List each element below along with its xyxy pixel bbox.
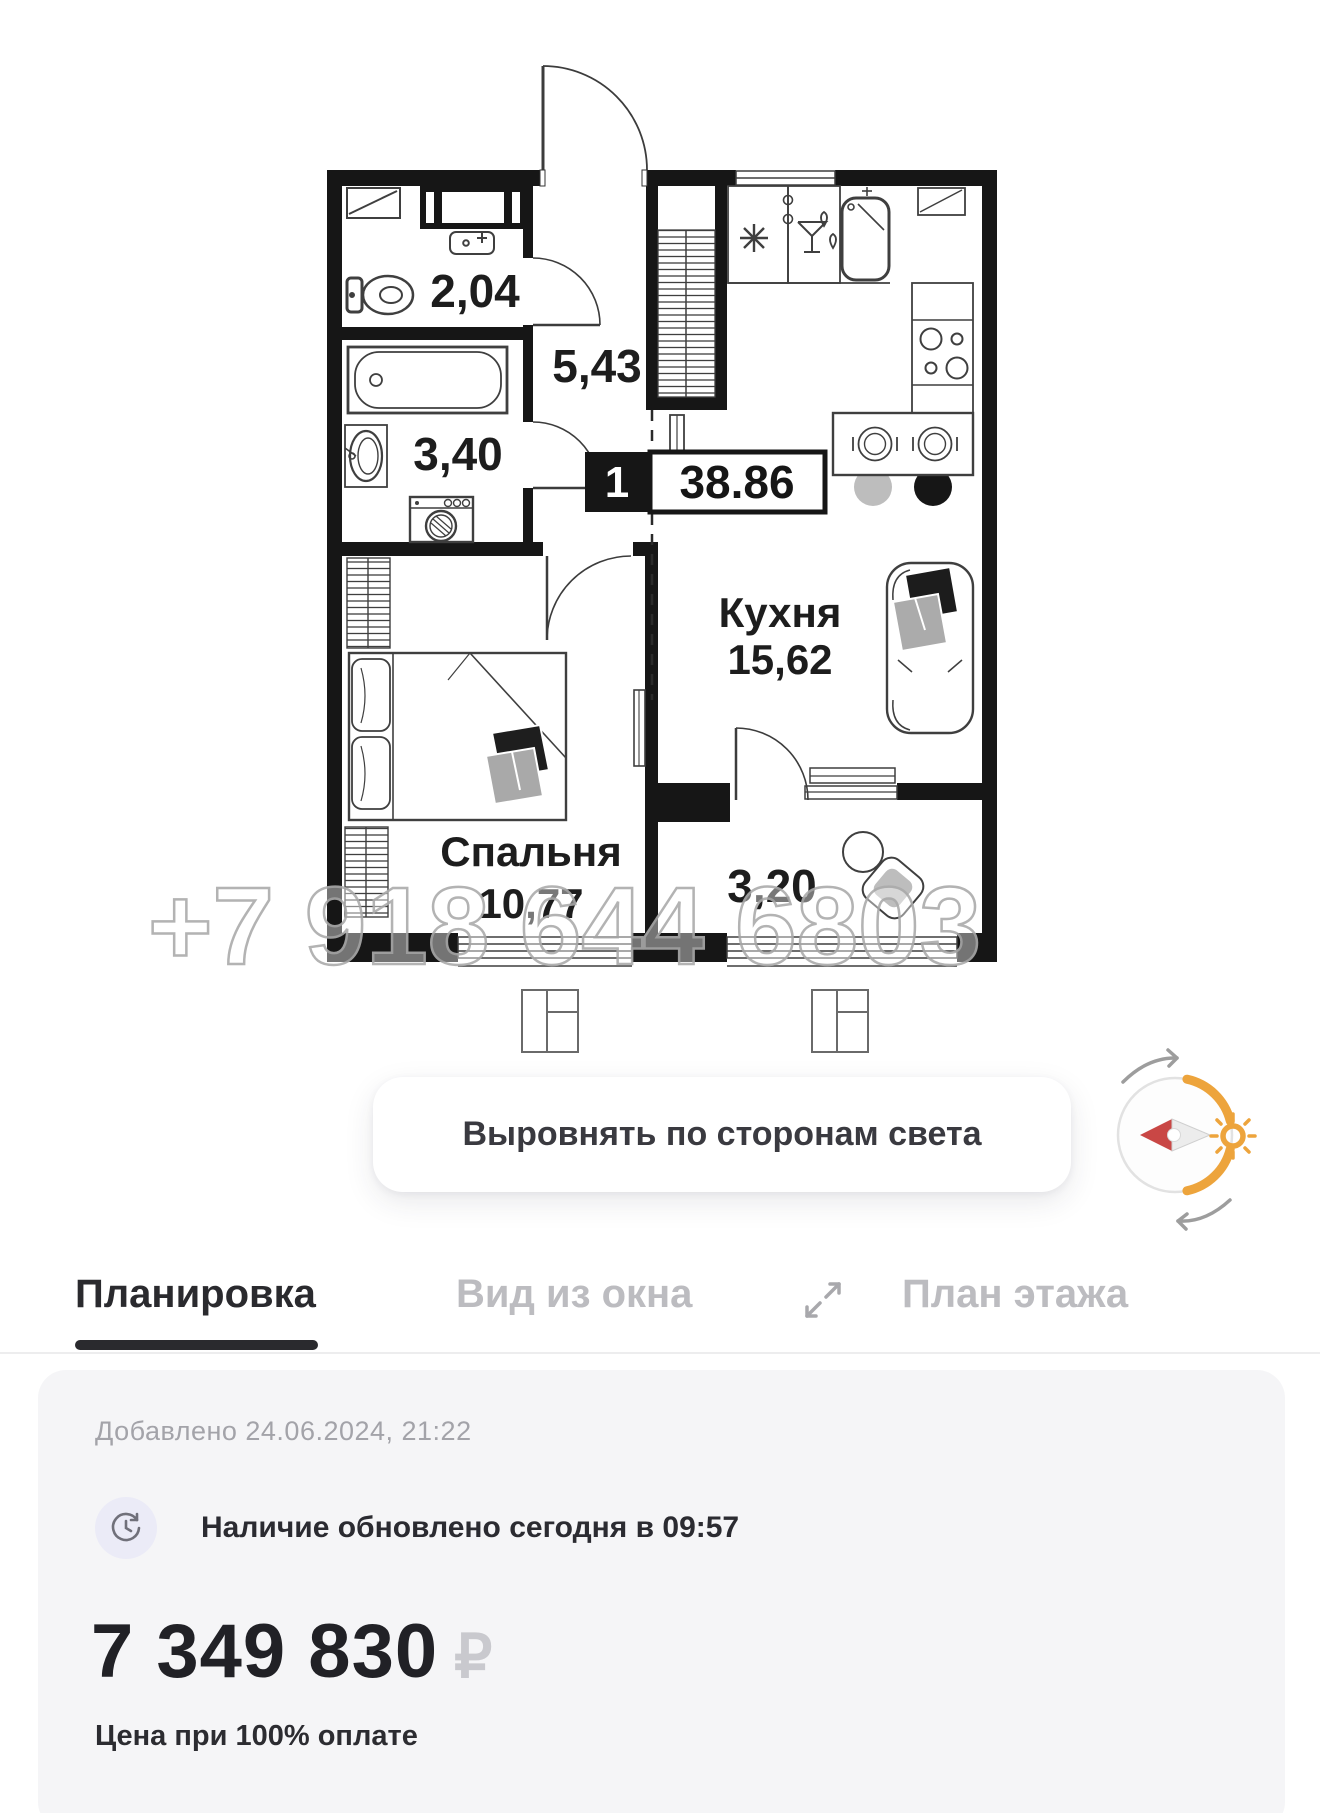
align-compass-button[interactable]: Выровнять по сторонам света (373, 1077, 1071, 1192)
badge-room-count: 1 (605, 458, 629, 507)
tab-window-view[interactable]: Вид из окна (456, 1272, 692, 1317)
room-label-hall-area: 5,43 (552, 340, 642, 392)
watermark-phone: +7 918 644 6803 (148, 865, 981, 988)
room-label-bathroom-area: 3,40 (413, 428, 503, 480)
badge-total-area: 38.86 (679, 456, 794, 508)
availability-badge (95, 1497, 157, 1559)
price-row: 7 349 830 ₽ (91, 1608, 492, 1695)
shaft (658, 230, 715, 397)
room-labels: 2,04 5,43 3,40 Кухня 15,62 Спальня 10,77… (413, 265, 841, 927)
price-value: 7 349 830 (91, 1608, 438, 1695)
room-label-kitchen-name: Кухня (719, 589, 842, 636)
currency-symbol: ₽ (454, 1622, 492, 1692)
compass-widget[interactable] (1100, 1045, 1280, 1245)
listing-screen: 1 38.86 2,04 5,43 3,40 Кухня 15,62 Спаль… (0, 0, 1320, 1813)
tabs-divider (0, 1352, 1320, 1354)
tab-floor-plan[interactable]: План этажа (902, 1272, 1128, 1317)
details-card: Добавлено 24.06.2024, 21:22 Наличие обно… (38, 1370, 1285, 1813)
expand-icon[interactable] (795, 1272, 851, 1328)
unit-badge: 1 38.86 (585, 452, 825, 512)
added-date: Добавлено 24.06.2024, 21:22 (95, 1416, 472, 1447)
tab-layout[interactable]: Планировка (75, 1272, 316, 1317)
balcony-markers (522, 990, 868, 1052)
room-label-kitchen-area: 15,62 (727, 636, 832, 683)
clock-history-icon (108, 1510, 144, 1546)
room-label-wc-area: 2,04 (430, 265, 520, 317)
price-note: Цена при 100% оплате (95, 1720, 418, 1753)
entrance-door (543, 66, 647, 170)
availability-text: Наличие обновлено сегодня в 09:57 (201, 1511, 739, 1545)
active-tab-indicator (75, 1340, 318, 1350)
floor-plan: 1 38.86 2,04 5,43 3,40 Кухня 15,62 Спаль… (0, 0, 1320, 1060)
